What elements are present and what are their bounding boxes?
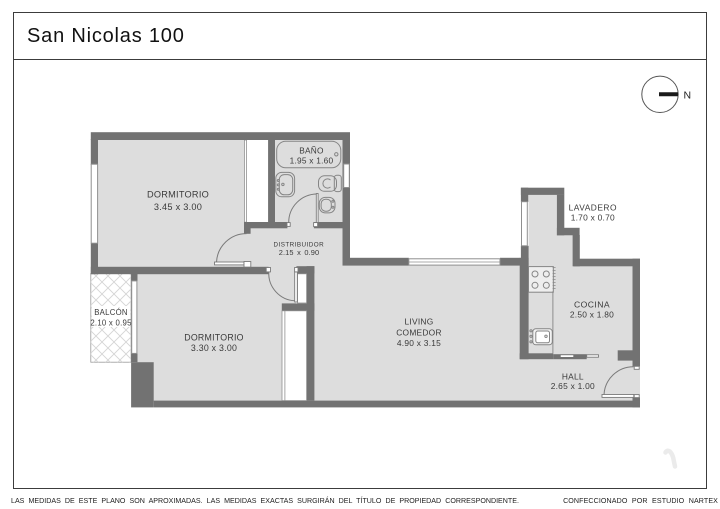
svg-text:DORMITORIO: DORMITORIO bbox=[147, 190, 209, 200]
svg-text:3.30 x 3.00: 3.30 x 3.00 bbox=[191, 343, 237, 353]
svg-text:San Nicolas 100: San Nicolas 100 bbox=[27, 25, 185, 47]
svg-text:2.65 x 1.00: 2.65 x 1.00 bbox=[551, 381, 595, 391]
svg-text:2.10 x 0.95: 2.10 x 0.95 bbox=[90, 318, 132, 327]
svg-text:N: N bbox=[684, 89, 692, 101]
svg-text:BAÑO: BAÑO bbox=[299, 146, 324, 156]
svg-text:LIVING: LIVING bbox=[405, 317, 434, 327]
svg-text:1.95 x 1.60: 1.95 x 1.60 bbox=[290, 156, 334, 166]
svg-text:HALL: HALL bbox=[562, 372, 584, 382]
svg-text:2.50 x 1.80: 2.50 x 1.80 bbox=[570, 310, 614, 320]
svg-text:CONFECCIONADO POR ESTUDIO NART: CONFECCIONADO POR ESTUDIO NARTEX bbox=[563, 497, 718, 505]
svg-text:BALCÓN: BALCÓN bbox=[94, 308, 128, 317]
svg-text:COMEDOR: COMEDOR bbox=[396, 328, 442, 338]
svg-text:3.45 x 3.00: 3.45 x 3.00 bbox=[154, 202, 202, 212]
svg-text:2.15 x 0.90: 2.15 x 0.90 bbox=[279, 248, 320, 257]
svg-text:LAVADERO: LAVADERO bbox=[569, 203, 617, 213]
svg-text:LAS MEDIDAS DE ESTE PLANO SON: LAS MEDIDAS DE ESTE PLANO SON APROXIMADA… bbox=[11, 496, 519, 505]
svg-text:DORMITORIO: DORMITORIO bbox=[184, 333, 244, 343]
svg-text:4.90 x 3.15: 4.90 x 3.15 bbox=[397, 338, 441, 348]
svg-text:1.70 x 0.70: 1.70 x 0.70 bbox=[571, 212, 615, 222]
svg-text:COCINA: COCINA bbox=[574, 300, 610, 310]
